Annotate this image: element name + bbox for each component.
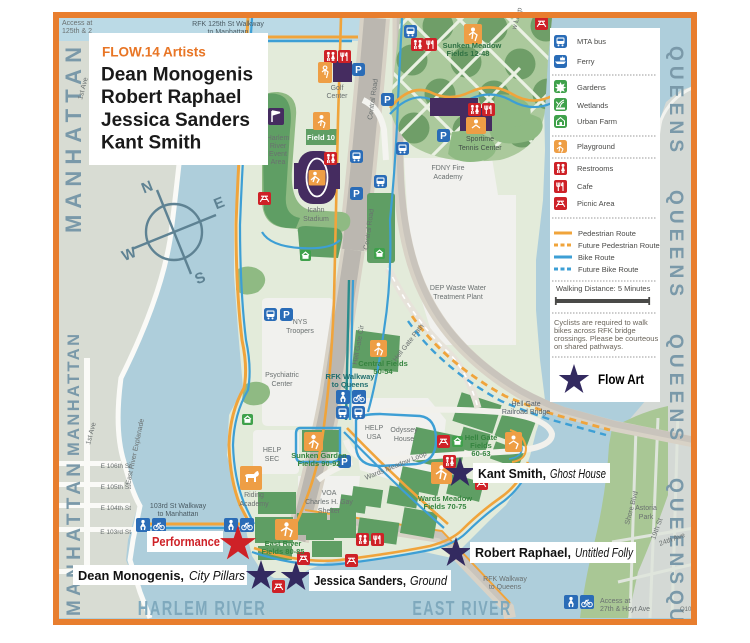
svg-text:River: River (270, 143, 287, 150)
svg-text:Playground: Playground (577, 142, 615, 151)
svg-text:Future Bike Route: Future Bike Route (578, 265, 638, 274)
svg-text:Bike Route: Bike Route (578, 253, 615, 262)
svg-text:SEC: SEC (265, 456, 279, 463)
svg-text:Gardens: Gardens (577, 83, 606, 92)
svg-text:Area: Area (271, 159, 286, 166)
svg-text:Restrooms: Restrooms (577, 164, 614, 173)
svg-text:Fields 70-75: Fields 70-75 (424, 502, 467, 511)
svg-text:Pedestrian Route: Pedestrian Route (578, 229, 636, 238)
svg-text:RFK 125th St Walkway: RFK 125th St Walkway (192, 21, 264, 28)
svg-text:FLOW.14 Artists: FLOW.14 Artists (102, 45, 206, 60)
svg-text:Railroad Bridge: Railroad Bridge (502, 409, 550, 416)
svg-text:Fields 12-48: Fields 12-48 (447, 49, 490, 58)
svg-text:VOA: VOA (322, 490, 337, 497)
svg-text:Charles H. Gay: Charles H. Gay (305, 499, 353, 506)
svg-text:to Manhattan: to Manhattan (158, 511, 199, 518)
svg-text:Fields 80-85: Fields 80-85 (262, 547, 305, 556)
svg-text:Kant Smith,: Kant Smith, (478, 466, 546, 481)
svg-text:Wetlands: Wetlands (577, 101, 608, 110)
svg-text:Jessica Sanders: Jessica Sanders (101, 110, 250, 131)
svg-text:125th & 2: 125th & 2 (62, 28, 92, 35)
svg-text:Flow Art: Flow Art (598, 371, 644, 387)
svg-text:Kant Smith: Kant Smith (101, 133, 201, 154)
svg-text:Performance: Performance (152, 534, 220, 549)
svg-text:Walking Distance: 5 Minutes: Walking Distance: 5 Minutes (556, 284, 651, 293)
svg-text:Cafe: Cafe (577, 182, 593, 191)
svg-text:Jessica Sanders,: Jessica Sanders, (314, 573, 406, 588)
svg-text:House: House (394, 436, 414, 443)
svg-text:50-54: 50-54 (373, 367, 393, 376)
svg-text:Psychiatric: Psychiatric (265, 372, 299, 379)
svg-text:City Pillars: City Pillars (189, 568, 245, 583)
svg-text:NYS: NYS (293, 319, 308, 326)
svg-text:HARLEM RIVER: HARLEM RIVER (138, 597, 267, 620)
svg-text:Event: Event (269, 151, 287, 158)
svg-text:on shared pathways.: on shared pathways. (554, 342, 623, 351)
svg-text:EAST RIVER: EAST RIVER (412, 597, 511, 620)
svg-text:Troopers: Troopers (286, 328, 314, 335)
svg-text:E 106th St: E 106th St (101, 463, 132, 470)
svg-text:HELP: HELP (365, 425, 384, 432)
svg-text:Golf: Golf (331, 85, 344, 92)
svg-text:Harlem: Harlem (267, 135, 290, 142)
svg-text:Ghost House: Ghost House (550, 466, 606, 481)
svg-text:MANHATTAN: MANHATTAN (61, 47, 86, 233)
svg-text:Field 10: Field 10 (307, 133, 335, 142)
svg-text:Park: Park (639, 514, 654, 521)
svg-text:MTA bus: MTA bus (577, 37, 606, 46)
svg-text:E 104th St: E 104th St (101, 505, 132, 512)
svg-text:MANHATTAN: MANHATTAN (64, 463, 85, 616)
svg-text:Dean Monogenis: Dean Monogenis (101, 65, 253, 86)
svg-text:to Queens: to Queens (332, 380, 369, 389)
svg-text:DEP Waste Water: DEP Waste Water (430, 285, 487, 292)
svg-text:Dean Monogenis,: Dean Monogenis, (78, 568, 184, 583)
svg-text:Robert Raphael,: Robert Raphael, (475, 545, 571, 560)
svg-text:Shelter: Shelter (318, 508, 341, 515)
svg-text:E 103rd St: E 103rd St (100, 529, 131, 536)
svg-text:Hell Gate: Hell Gate (511, 401, 540, 408)
svg-text:Future Pedestrian Route: Future Pedestrian Route (578, 241, 660, 250)
svg-text:60-63: 60-63 (471, 449, 490, 458)
svg-text:Academy: Academy (239, 501, 269, 508)
svg-text:Riding: Riding (244, 492, 264, 499)
svg-text:RFK Walkway: RFK Walkway (483, 576, 527, 583)
svg-text:FDNY Fire: FDNY Fire (432, 165, 465, 172)
svg-text:Robert Raphael: Robert Raphael (101, 87, 241, 108)
svg-text:Center: Center (271, 381, 293, 388)
svg-text:Picnic Area: Picnic Area (577, 199, 615, 208)
svg-text:Ground: Ground (410, 573, 448, 588)
svg-text:Tennis Center: Tennis Center (458, 145, 502, 152)
svg-text:Treatment Plant: Treatment Plant (433, 294, 483, 301)
svg-text:Stadium: Stadium (303, 216, 329, 223)
svg-text:Sportime: Sportime (466, 136, 494, 143)
svg-text:Fields 90-92: Fields 90-92 (298, 459, 341, 468)
svg-text:Icahn: Icahn (307, 207, 324, 214)
svg-text:MANHATTAN: MANHATTAN (65, 334, 83, 456)
svg-text:103rd St Walkway: 103rd St Walkway (150, 503, 207, 510)
svg-text:27th & Hoyt Ave: 27th & Hoyt Ave (600, 606, 650, 613)
svg-text:Academy: Academy (433, 174, 463, 181)
svg-text:Urban Farm: Urban Farm (577, 117, 617, 126)
svg-text:Access at: Access at (62, 20, 92, 27)
svg-text:Center: Center (326, 93, 348, 100)
svg-text:USA: USA (367, 434, 382, 441)
svg-text:Odyssey: Odyssey (390, 427, 418, 434)
svg-text:Astoria: Astoria (635, 505, 657, 512)
svg-text:Ferry: Ferry (577, 57, 595, 66)
svg-text:to Queens: to Queens (489, 584, 522, 591)
svg-text:HELP: HELP (263, 447, 282, 454)
svg-text:Access at: Access at (600, 598, 630, 605)
svg-text:Untitled Folly: Untitled Folly (575, 545, 634, 560)
